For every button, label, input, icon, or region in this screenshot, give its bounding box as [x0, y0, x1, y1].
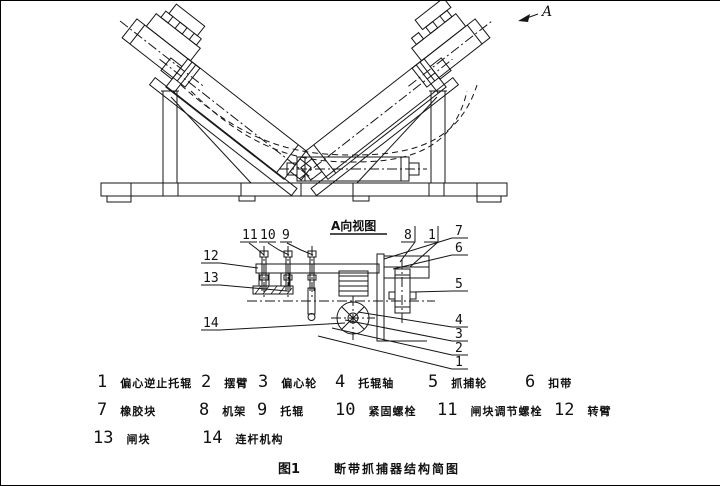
view-direction-label: A [540, 4, 552, 20]
svg-text:7: 7 [455, 224, 463, 239]
legend-label: 机架 [222, 403, 246, 419]
legend-item-1: 1 偏心逆止托辊 [97, 372, 192, 392]
svg-text:2: 2 [455, 341, 463, 356]
callout-8: 8 [400, 226, 415, 262]
svg-text:13: 13 [203, 271, 219, 286]
svg-text:14: 14 [203, 316, 219, 331]
belt-curve [181, 85, 477, 162]
svg-text:10: 10 [260, 228, 276, 243]
callout-6: 6 [393, 241, 468, 269]
legend-item-11: 11 闸块调节螺栓 [437, 400, 542, 420]
detail-view-drawing: A向视图 [201, 218, 468, 370]
svg-text:4: 4 [455, 313, 463, 328]
callout-3: 3 [345, 320, 468, 342]
legend-item-12: 12 转臂 [554, 400, 611, 420]
right-roller [288, 45, 463, 193]
eccentric-wheel [331, 296, 375, 340]
svg-text:1: 1 [428, 228, 436, 243]
legend-label: 托辊轴 [358, 375, 394, 391]
legend-item-2: 2 摆臂 [201, 372, 248, 392]
left-catcher-assembly [113, 1, 233, 96]
legend-label: 抓捕轮 [451, 375, 487, 391]
figure-title: 断带抓捕器结构简图 [334, 460, 460, 477]
legend-number: 9 [257, 400, 267, 420]
legend-item-8: 8 机架 [199, 400, 246, 420]
callout-12: 12 [201, 249, 258, 268]
legend-item-9: 9 托辊 [257, 400, 304, 420]
view-direction-marker: A [518, 4, 552, 22]
legend-number: 10 [335, 400, 355, 420]
svg-text:8: 8 [404, 228, 412, 243]
legend-item-10: 10 紧固螺栓 [335, 400, 416, 420]
callout-5: 5 [413, 277, 468, 292]
svg-text:6: 6 [455, 241, 463, 256]
front-view-drawing: A [101, 1, 552, 202]
svg-text:1: 1 [455, 355, 463, 370]
legend-item-14: 14 连杆机构 [202, 428, 283, 448]
figure-number: 图1 [278, 458, 300, 477]
legend-number: 3 [258, 372, 268, 392]
callout-13: 13 [201, 271, 287, 291]
swing-arm-bar [256, 264, 379, 286]
right-catcher-assembly [379, 1, 499, 96]
legend-number: 8 [199, 400, 209, 420]
legend-number: 14 [202, 428, 222, 448]
legend-item-3: 3 偏心轮 [258, 372, 317, 392]
legend-label: 转臂 [587, 403, 611, 419]
left-rail [150, 78, 297, 196]
legend-item-4: 4 托辊轴 [335, 372, 394, 392]
legend-number: 1 [97, 372, 107, 392]
svg-text:5: 5 [455, 277, 463, 292]
legend-item-5: 5 抓捕轮 [428, 372, 487, 392]
legend-item-7: 7 橡胶块 [97, 400, 156, 420]
legend-number: 12 [554, 400, 574, 420]
legend-label: 扣带 [548, 375, 572, 391]
legend-label: 偏心轮 [281, 375, 317, 391]
legend-number: 11 [437, 400, 457, 420]
legend-number: 6 [525, 372, 535, 392]
legend-label: 橡胶块 [120, 403, 156, 419]
callout-14: 14 [201, 316, 345, 331]
legend-number: 13 [93, 428, 113, 448]
legend-number: 4 [335, 372, 345, 392]
legend-label: 闸块 [126, 431, 150, 447]
legend-label: 紧固螺栓 [368, 403, 416, 419]
legend-label: 托辊 [280, 403, 304, 419]
legend-label: 偏心逆止托辊 [120, 375, 192, 391]
link-rod [308, 288, 315, 321]
legend-label: 连杆机构 [235, 431, 283, 447]
svg-text:3: 3 [455, 327, 463, 342]
base-beam [101, 183, 507, 202]
legend-label: 摆臂 [224, 375, 248, 391]
callout-2: 2 [332, 328, 468, 356]
figure-caption: 图1 断带抓捕器结构简图 [278, 458, 460, 477]
figure-page: A A向视图 [0, 0, 720, 486]
rubber-block-stack [339, 271, 368, 296]
svg-text:12: 12 [203, 249, 219, 264]
legend-number: 7 [97, 400, 107, 420]
svg-text:11: 11 [242, 228, 258, 243]
legend-number: 2 [201, 372, 211, 392]
legend-label: 闸块调节螺栓 [470, 403, 542, 419]
detail-view-title: A向视图 [331, 218, 376, 233]
svg-text:9: 9 [282, 228, 290, 243]
arrowhead-icon [518, 14, 530, 22]
legend-item-6: 6 扣带 [525, 372, 572, 392]
legend-number: 5 [428, 372, 438, 392]
legend-item-13: 13 闸块 [93, 428, 150, 448]
